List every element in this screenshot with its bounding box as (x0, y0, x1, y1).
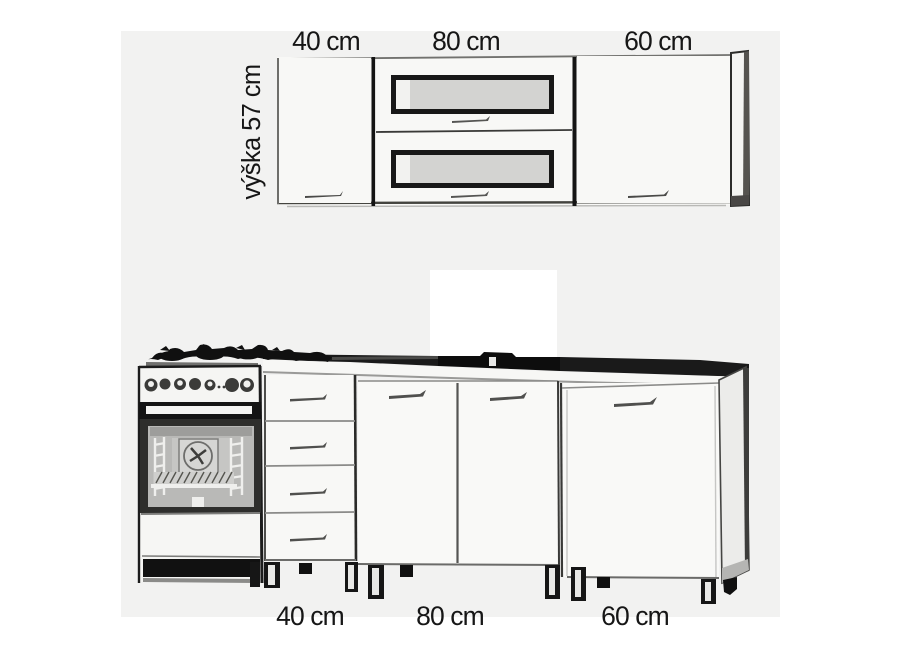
svg-text:80 cm: 80 cm (432, 26, 500, 56)
svg-text:80 cm: 80 cm (416, 601, 484, 631)
svg-text:40 cm: 40 cm (276, 601, 344, 631)
svg-text:60 cm: 60 cm (601, 601, 669, 631)
svg-text:60 cm: 60 cm (624, 26, 692, 56)
svg-text:40 cm: 40 cm (292, 26, 360, 56)
svg-text:výška 57 cm: výška 57 cm (238, 64, 266, 199)
